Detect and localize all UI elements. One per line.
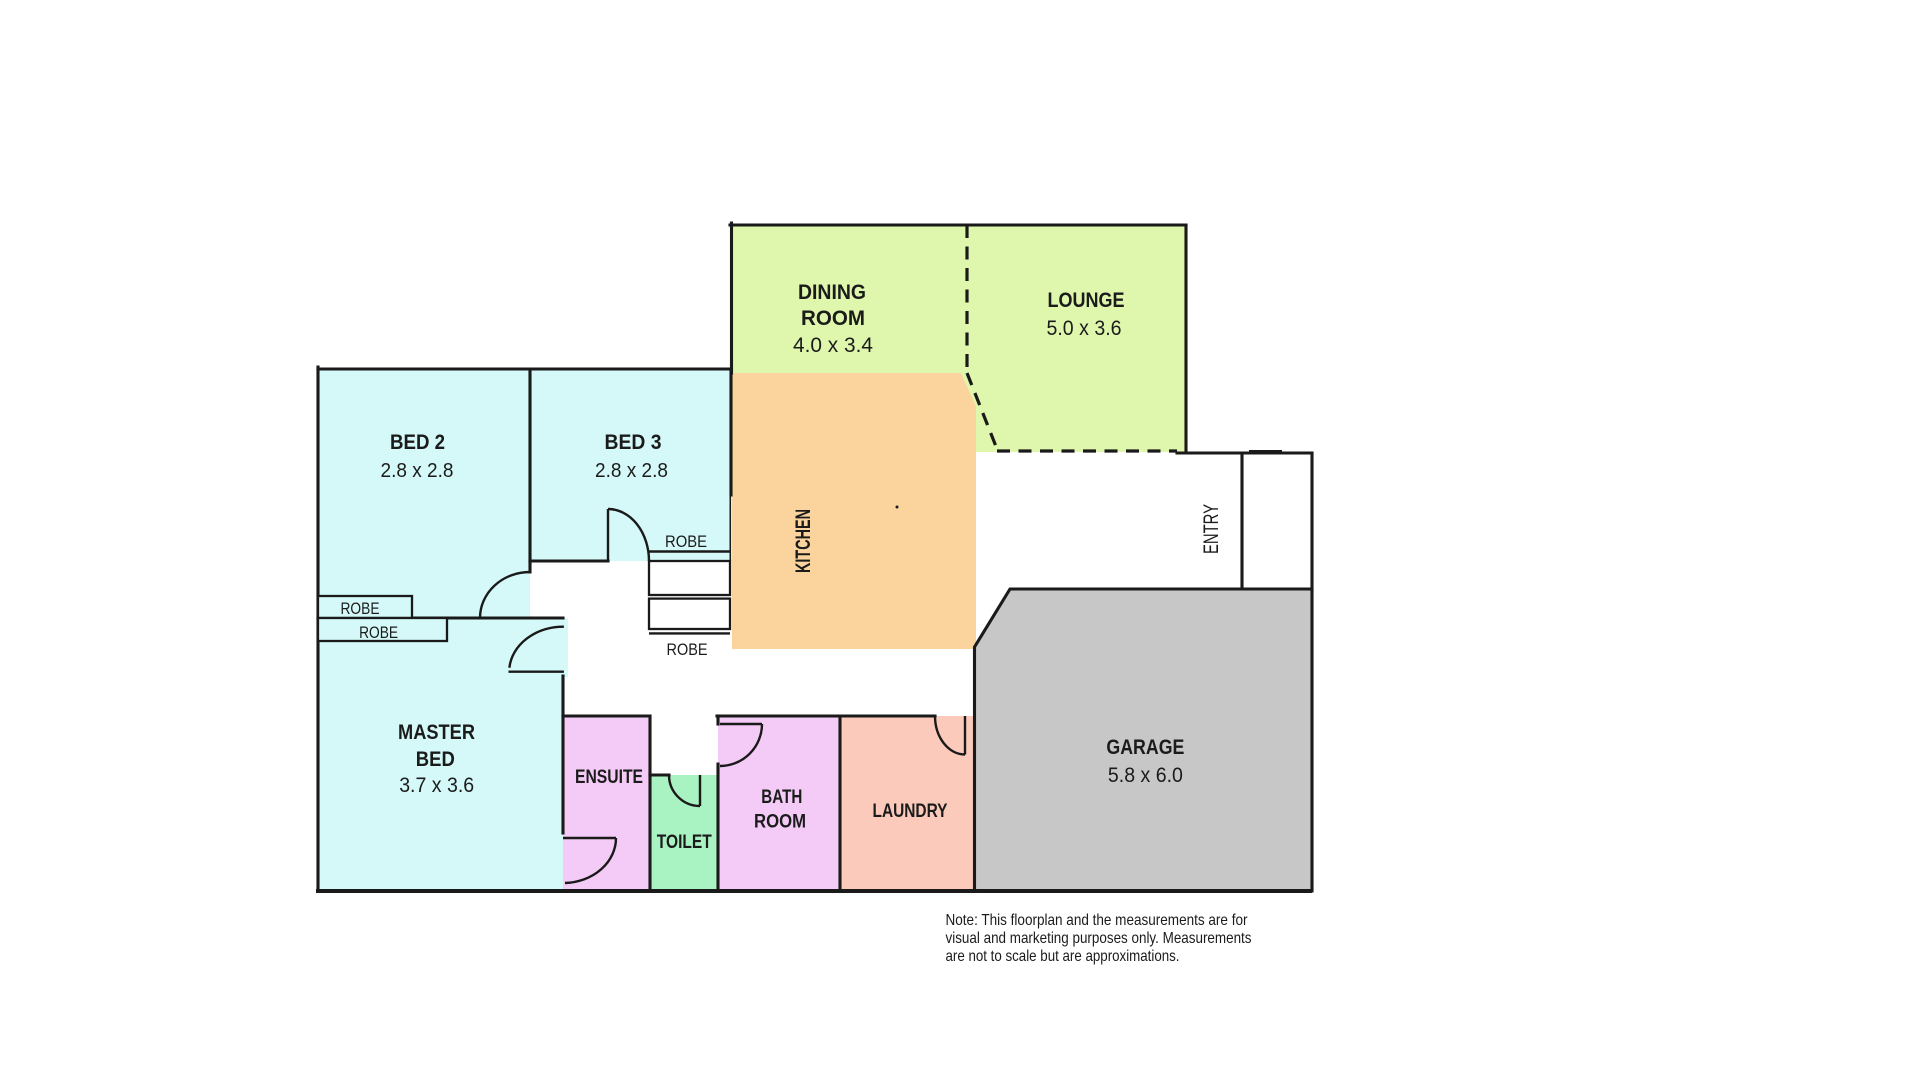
svg-text:3.7 x 3.6: 3.7 x 3.6 (399, 774, 474, 797)
svg-text:TOILET: TOILET (657, 831, 712, 853)
svg-text:ROBE: ROBE (341, 599, 380, 618)
svg-text:LAUNDRY: LAUNDRY (873, 800, 948, 822)
svg-text:MASTER: MASTER (398, 721, 475, 744)
svg-text:LOUNGE: LOUNGE (1048, 289, 1125, 312)
svg-text:ROOM: ROOM (754, 811, 806, 833)
svg-text:BATH: BATH (761, 786, 802, 808)
svg-text:KITCHEN: KITCHEN (792, 509, 815, 573)
svg-text:5.0 x 3.6: 5.0 x 3.6 (1047, 317, 1122, 340)
svg-text:ENTRY: ENTRY (1200, 504, 1223, 554)
svg-text:2.8 x 2.8: 2.8 x 2.8 (595, 459, 668, 482)
svg-text:visual and marketing purposes: visual and marketing purposes only. Meas… (946, 930, 1252, 947)
svg-text:4.0 x 3.4: 4.0 x 3.4 (793, 334, 873, 357)
svg-text:ROBE: ROBE (359, 623, 398, 642)
svg-text:2.8 x 2.8: 2.8 x 2.8 (381, 459, 454, 482)
svg-text:are not to scale but are appro: are not to scale but are approximations. (946, 948, 1180, 965)
svg-text:ROBE: ROBE (665, 532, 707, 551)
svg-text:ROOM: ROOM (801, 307, 865, 330)
svg-text:BED 3: BED 3 (605, 431, 662, 454)
svg-text:BED 2: BED 2 (390, 431, 445, 454)
svg-text:BED: BED (416, 748, 455, 771)
svg-text:DINING: DINING (798, 281, 866, 304)
svg-text:Note: This floorplan and the m: Note: This floorplan and the measurement… (946, 912, 1249, 929)
svg-text:ROBE: ROBE (667, 640, 708, 659)
svg-text:GARAGE: GARAGE (1106, 736, 1184, 759)
svg-text:5.8 x 6.0: 5.8 x 6.0 (1108, 764, 1183, 787)
svg-text:ENSUITE: ENSUITE (575, 766, 643, 788)
